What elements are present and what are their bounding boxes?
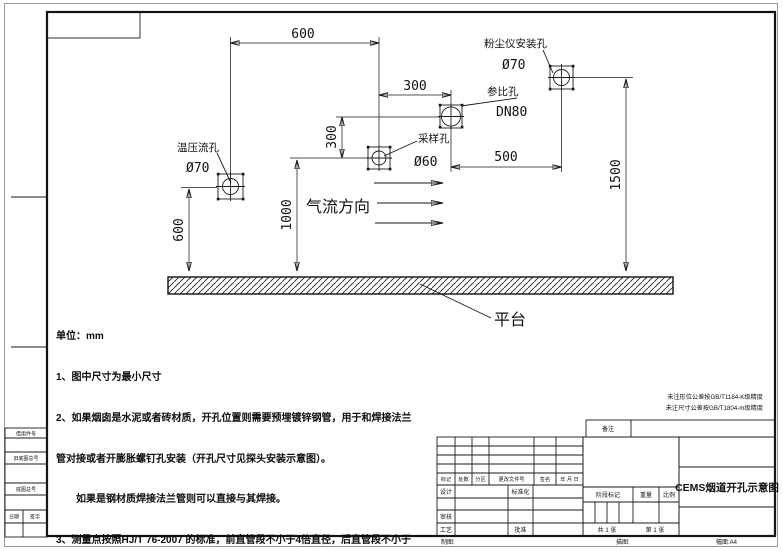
label-sampling: 采样孔 Ø60 [384, 132, 450, 170]
hole-dust-meter [548, 64, 575, 91]
dim-text: 500 [494, 150, 517, 165]
dim-1500: 1500 [575, 78, 633, 272]
trace-label: 描图: [616, 538, 630, 546]
drawing-title: CEMS烟道开孔示意图 [675, 481, 779, 494]
sheet-number: 第 1 张 [646, 526, 665, 534]
hole-label: 采样孔 [418, 132, 450, 145]
remark-label: 备注 [602, 425, 614, 433]
hole-label: 温压流孔 [177, 141, 219, 154]
hole-size: Ø60 [414, 155, 437, 170]
note-line: 1、图中尺寸为最小尺寸 [56, 371, 446, 385]
hole-sampling [366, 145, 392, 171]
dim-text: 1000 [280, 199, 295, 230]
platform-label: 平台 [494, 311, 526, 329]
flow-direction-label: 气流方向 [306, 198, 370, 216]
hole-size: Ø70 [186, 161, 209, 176]
airflow: 气流方向 [306, 183, 443, 223]
dim-text: 1500 [609, 159, 624, 190]
tolerance-line: 未注尺寸公差按GB/T1804-m级精度 [666, 404, 763, 412]
standardization-label: 标准化 [511, 488, 529, 496]
approve-label: 批准 [514, 526, 526, 534]
label-reference: 参比孔 DN80 [461, 85, 527, 120]
rev-header: 更改文件号 [499, 475, 525, 483]
rev-header: 分区 [475, 475, 485, 483]
note-line: 3、测量点按照HJ/T 76-2007 的标准，前直管段不小于4倍直径，后直管段… [56, 534, 446, 548]
note-line: 2、如果烟囱是水泥或者砖材质，开孔位置则需要预埋镀锌钢管，用于和焊接法兰 [56, 412, 446, 426]
hole-size: DN80 [496, 105, 527, 120]
rev-header: 签名 [540, 475, 550, 483]
format-label: 幅面:A4 [716, 538, 738, 546]
corner-box [47, 12, 140, 38]
dim-text: 600 [291, 27, 314, 42]
hole-label: 粉尘仪安装孔 [484, 37, 547, 50]
sheet-total: 共 1 张 [598, 526, 617, 534]
tolerance-notes: 未注形位公差按GB/T1184-K级精度 未注尺寸公差按GB/T1804-m级精… [666, 393, 763, 412]
unit-note: 单位：mm [56, 330, 446, 344]
dim-text: 300 [403, 79, 426, 94]
scale-label: 比例 [663, 491, 675, 499]
dim-500: 500 [451, 91, 562, 172]
tolerance-line: 未注形位公差按GB/T1184-K级精度 [667, 393, 763, 401]
dim-600-top: 600 [231, 27, 380, 172]
note-line: 管对接或者开膨胀螺钉孔安装（开孔尺寸见探头安装示意图）。 [56, 453, 446, 467]
margin-date-label: 日期 [9, 515, 19, 521]
hole-label: 参比孔 [487, 85, 519, 98]
notes-block: 单位：mm 1、图中尺寸为最小尺寸 2、如果烟囱是水泥或者砖材质，开孔位置则需要… [56, 303, 446, 551]
dim-300-horizontal: 300 [379, 79, 451, 103]
rev-header: 处数 [458, 475, 469, 483]
margin-strip: 借用件号 旧底图总号 底图总号 日期 签字 [5, 428, 47, 537]
drawing-sheet: 600 300 300 500 1000 600 1500 温压流孔 [0, 0, 783, 551]
margin-box2-label: 旧底图总号 [13, 455, 38, 462]
rev-header: 年 月 日 [560, 475, 578, 483]
margin-box1-label: 借用件号 [16, 431, 36, 438]
weight-label: 重量 [640, 491, 652, 499]
hole-size: Ø70 [502, 58, 525, 73]
label-temp-pressure-flow: 温压流孔 Ø70 [177, 141, 231, 183]
hole-reference [438, 103, 464, 130]
note-line: 如果是钢材质焊接法兰管则可以直接与其焊接。 [56, 493, 446, 507]
dim-text: 300 [325, 125, 340, 148]
title-block: 备注 标记 处数 分区 更改文件号 签名 年 月 日 设计 标准化 审核 工艺 … [437, 420, 779, 546]
dim-text: 600 [172, 218, 187, 241]
hole-temp-pressure-flow [216, 172, 245, 201]
dim-1000: 1000 [280, 160, 297, 271]
label-dust-meter: 粉尘仪安装孔 Ø70 [484, 37, 553, 73]
stage-mark-label: 阶段标记 [596, 491, 620, 499]
margin-sign-label: 签字 [30, 514, 40, 521]
margin-box3-label: 底图总号 [16, 486, 36, 493]
dim-600-left: 600 [172, 188, 217, 272]
